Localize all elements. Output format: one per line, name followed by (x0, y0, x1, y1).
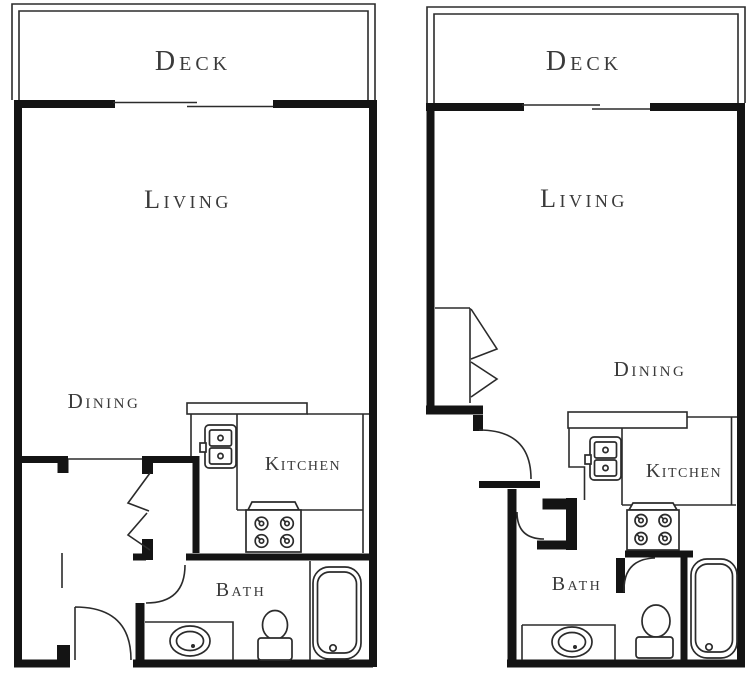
bifold-closet-door (128, 473, 150, 550)
stove (627, 503, 679, 550)
entry-door (479, 430, 531, 479)
vanity-sink (145, 622, 233, 660)
entry-door (75, 607, 131, 660)
toilet (636, 605, 673, 658)
room-label-bath: Bath (216, 579, 267, 601)
stove (246, 502, 301, 552)
room-label-kitchen: Kitchen (646, 460, 722, 482)
room-label-deck: Deck (155, 46, 231, 77)
toilet (258, 611, 292, 661)
kitchen-sink (585, 437, 621, 480)
floor-plan-canvas: Deck Living Dining Kitchen Bath (0, 0, 754, 681)
hall-opening-line (62, 459, 142, 588)
room-label-bath: Bath (552, 573, 603, 595)
room-label-dining: Dining (614, 357, 687, 381)
bifold-closet-door (471, 309, 497, 397)
kitchen-counter-bar (187, 403, 307, 414)
kitchen-counter-bar (568, 412, 687, 428)
room-label-dining: Dining (68, 389, 141, 413)
vanity-sink (522, 625, 615, 660)
room-label-living: Living (144, 185, 232, 214)
right-unit-plan: Deck Living Dining Kitchen Bath (426, 7, 745, 667)
bathtub (310, 561, 361, 660)
bathtub (691, 559, 737, 658)
bath-door (146, 565, 185, 603)
room-label-living: Living (540, 184, 628, 213)
hall-bath-door (517, 512, 544, 539)
kitchen-sink (200, 425, 236, 468)
floor-plan-diagram: Deck Living Dining Kitchen Bath (0, 0, 754, 681)
left-unit-plan: Deck Living Dining Kitchen Bath (12, 4, 375, 667)
wall-stubs (63, 458, 148, 560)
bath-door (624, 558, 655, 592)
closet-outline (435, 308, 470, 403)
room-label-kitchen: Kitchen (265, 453, 341, 475)
sliding-glass-door (113, 103, 273, 107)
sliding-glass-door (522, 105, 650, 109)
room-label-deck: Deck (546, 46, 622, 77)
